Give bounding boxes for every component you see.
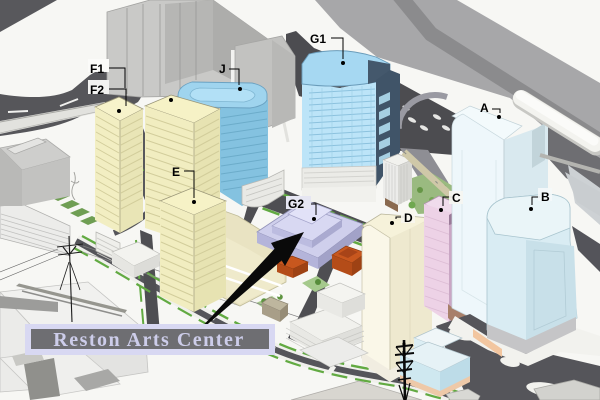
svg-text:E: E: [172, 165, 180, 179]
svg-text:D: D: [404, 211, 413, 225]
svg-text:Reston Arts Center: Reston Arts Center: [53, 329, 244, 351]
svg-text:G1: G1: [310, 32, 326, 46]
svg-text:F1: F1: [90, 62, 104, 76]
svg-text:G2: G2: [288, 197, 304, 211]
svg-text:C: C: [452, 191, 461, 205]
svg-text:F2: F2: [90, 83, 104, 97]
svg-text:B: B: [541, 190, 550, 204]
svg-text:A: A: [480, 101, 489, 115]
svg-text:J: J: [219, 62, 226, 76]
